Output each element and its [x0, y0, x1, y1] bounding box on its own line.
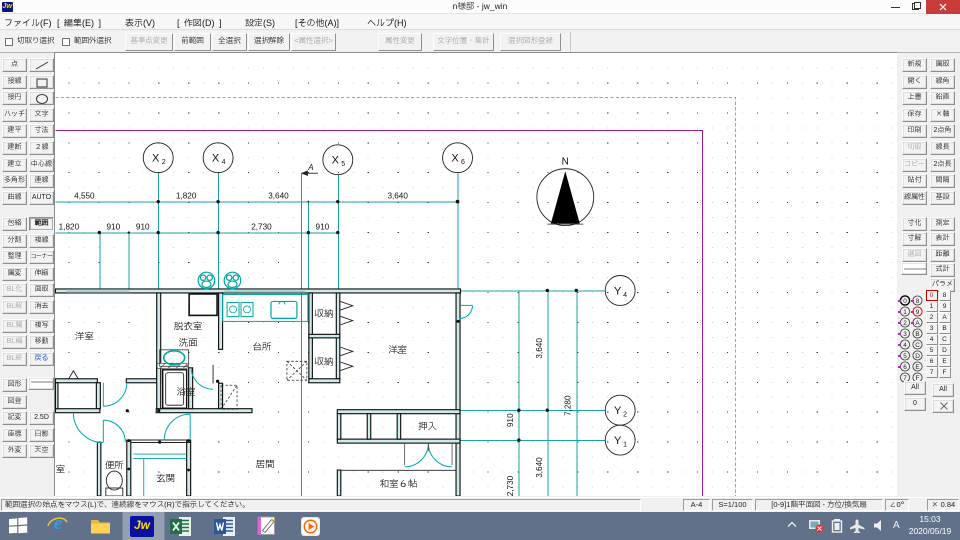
svg-text:5: 5: [341, 160, 345, 170]
svg-text:3,640: 3,640: [533, 338, 546, 359]
svg-text:洋室: 洋室: [75, 330, 94, 344]
svg-text:1: 1: [623, 441, 627, 451]
svg-text:洗面: 洗面: [179, 337, 198, 351]
svg-text:居間: 居間: [255, 459, 274, 473]
svg-text:910: 910: [106, 221, 120, 234]
svg-text:室: 室: [56, 464, 65, 478]
svg-text:910: 910: [316, 221, 330, 234]
svg-text:X: X: [212, 150, 220, 167]
svg-text:玄関: 玄関: [156, 473, 175, 487]
svg-text:収納: 収納: [314, 356, 333, 370]
svg-text:910: 910: [504, 413, 517, 427]
svg-text:1,820: 1,820: [176, 190, 197, 203]
svg-text:4,550: 4,550: [74, 190, 95, 203]
svg-text:2: 2: [162, 158, 166, 168]
svg-text:収納: 収納: [314, 308, 333, 322]
svg-text:X: X: [332, 152, 340, 169]
svg-text:X: X: [451, 150, 459, 167]
svg-text:4: 4: [623, 291, 627, 301]
svg-text:X: X: [152, 150, 160, 167]
svg-text:Y: Y: [614, 432, 622, 449]
svg-text:脱衣室: 脱衣室: [174, 320, 202, 334]
svg-text:3,640: 3,640: [268, 190, 289, 203]
svg-text:910: 910: [136, 221, 150, 234]
svg-text:台所: 台所: [253, 341, 272, 355]
svg-text:洋室: 洋室: [388, 344, 407, 358]
svg-text:3,640: 3,640: [387, 190, 408, 203]
svg-text:N: N: [562, 155, 569, 170]
svg-text:押入: 押入: [418, 421, 437, 435]
svg-text:3,640: 3,640: [533, 457, 546, 478]
svg-text:7,280: 7,280: [561, 395, 574, 416]
svg-text:A: A: [307, 162, 313, 174]
svg-text:浴室: 浴室: [177, 386, 196, 400]
svg-text:Y: Y: [614, 282, 622, 299]
svg-text:2,730: 2,730: [504, 475, 517, 496]
svg-text:便所: 便所: [105, 460, 124, 474]
svg-text:2: 2: [623, 411, 627, 421]
svg-text:6: 6: [461, 158, 465, 168]
svg-text:2,730: 2,730: [251, 221, 272, 234]
svg-text:Y: Y: [614, 402, 622, 419]
svg-text:4: 4: [222, 158, 226, 168]
svg-text:1,820: 1,820: [59, 221, 80, 234]
svg-text:和室６帖: 和室６帖: [379, 478, 418, 492]
